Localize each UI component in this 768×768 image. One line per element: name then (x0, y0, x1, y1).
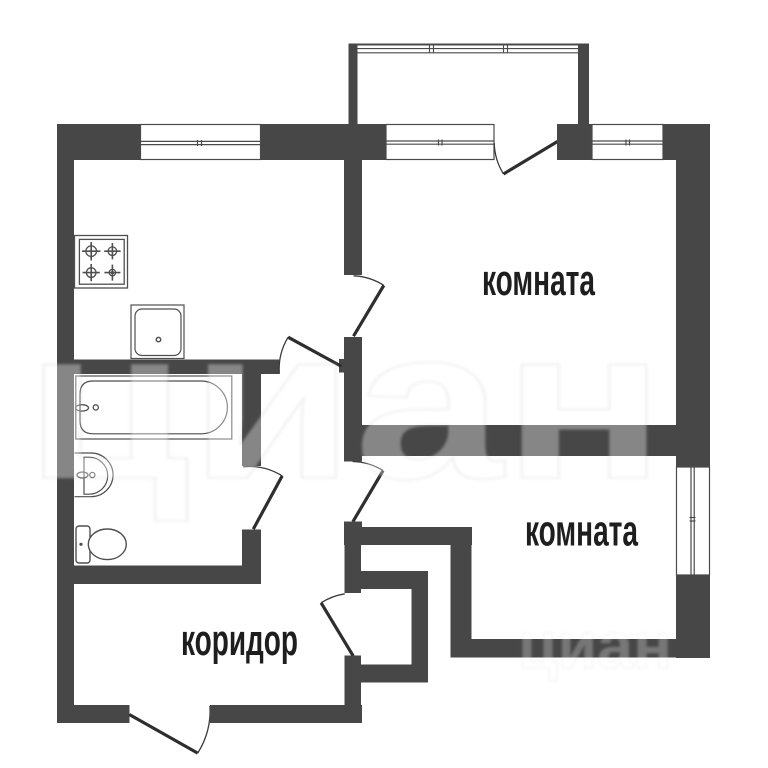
svg-text:циан: циан (518, 608, 672, 682)
svg-text:коридор: коридор (181, 616, 298, 665)
svg-text:циан: циан (25, 283, 665, 524)
